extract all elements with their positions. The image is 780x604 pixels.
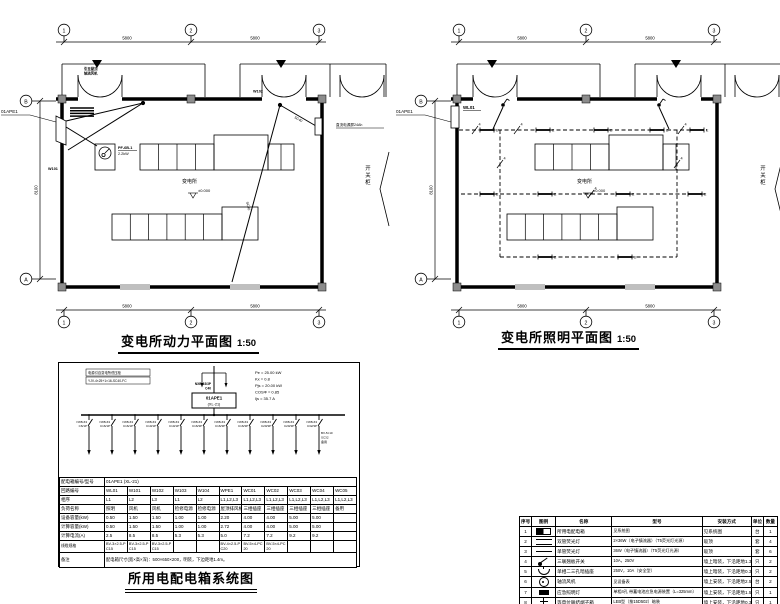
- branch-rating: C16/3P: [192, 424, 202, 428]
- branch-circuit: NXB-63C16/1P: [122, 414, 138, 455]
- panel-id: 01APE1: [206, 396, 223, 401]
- table-cell: 4.00: [265, 523, 288, 532]
- legend-spec: 见设备表: [612, 577, 702, 588]
- table-cell: 0.50: [105, 514, 128, 523]
- fan-power: 2.2kW: [118, 152, 129, 156]
- single-lamp-icon: [536, 551, 552, 552]
- legend-cell: 单管荧光灯: [556, 547, 612, 557]
- legend-cell: 台: [751, 577, 763, 588]
- branch-rating: C16/3P: [238, 424, 248, 428]
- table-cell: [334, 523, 357, 532]
- grid-bubble: 2: [190, 28, 193, 34]
- table-cell: 5.0: [219, 532, 242, 541]
- table-cell: 4.00: [242, 514, 265, 523]
- grid-bubble: 1: [63, 28, 66, 34]
- legend-header: 图例: [532, 517, 556, 527]
- load-parameter: Pe = 25.00 kW: [255, 370, 282, 375]
- dimension-label: 5800: [122, 36, 132, 41]
- side-room-label: 关: [365, 171, 371, 179]
- table-cell: 三相插座: [265, 505, 288, 514]
- table-cell: 5.00: [288, 523, 311, 532]
- table-cell: 4.00: [242, 523, 265, 532]
- table-cell: L1: [173, 496, 196, 505]
- conduit-label: SC40: [294, 115, 304, 123]
- dimension-label: 8100: [429, 185, 434, 195]
- table-cell: [173, 541, 196, 553]
- legend-spec: 36W（电子镇流器）（T5荧光灯光源）: [612, 547, 702, 557]
- grid-bubble: B: [419, 99, 423, 105]
- legend-cell: 8: [520, 598, 532, 604]
- table-cell: 检修电源: [196, 505, 219, 514]
- table-cell: 5.3: [196, 532, 219, 541]
- legend-cell: 2: [763, 557, 777, 567]
- legend-cell: 6: [763, 547, 777, 557]
- table-cell: W101: [127, 487, 150, 496]
- table-cell: W102: [150, 487, 173, 496]
- table-cell: L1,L2,L3: [288, 496, 311, 505]
- table-cell: 2.72: [219, 523, 242, 532]
- switchgear-cabinets: 变电所±0.000: [507, 135, 689, 240]
- legend-row: 6轴流风机见设备表墙上安装，下沿距地2.5M台2: [520, 577, 778, 588]
- level-mark: ±0.000: [198, 188, 211, 193]
- legend-cell: 4: [520, 557, 532, 567]
- switch-icon: [538, 558, 549, 566]
- table-cell: 2.20: [219, 514, 242, 523]
- legend-cell: 4: [763, 537, 777, 547]
- legend-cell: 墙上暗装，下沿距地1.3M: [702, 557, 751, 567]
- branch-circuit: NXB-63C16/1P: [99, 414, 115, 455]
- lighting-plan-scale: 1:50: [617, 334, 636, 345]
- legend-row: 5单相二三孔暗插座250V，10A（安全型）墙上暗装，下沿距地0.3M只2: [520, 567, 778, 577]
- system-diagram-title-text: 所用电配电箱系统图: [128, 571, 254, 586]
- legend-cell: 2: [763, 567, 777, 577]
- table-cell: 检修电源: [173, 505, 196, 514]
- dimension-label: 5800: [250, 36, 260, 41]
- table-row: 回路编号WL01W101W102W103W104WPE1WC01WC02WC03…: [60, 487, 357, 496]
- source-note: 电源引自变电所低压柜: [88, 370, 122, 375]
- branch-rating: C20/3P: [284, 424, 294, 428]
- emergency-lamp-icon: [539, 590, 549, 595]
- table-cell: BV-3×2.5-PC15: [105, 541, 128, 553]
- socket-icon: [538, 569, 550, 575]
- load-parameter: Ijs = 35.7 A: [255, 396, 275, 401]
- double-lamp-icon: [536, 539, 552, 545]
- table-cell: 5.00: [288, 514, 311, 523]
- table-cell: 2.5: [105, 532, 128, 541]
- table-cell: 1.50: [127, 523, 150, 532]
- switchgear-cabinets: 变电所±0.000PF-6B-12.2kW: [95, 135, 294, 240]
- legend-symbol-cell: [532, 567, 556, 577]
- dimension-label: 8100: [34, 185, 39, 195]
- wire-count: 4: [479, 123, 481, 127]
- grid-bubble: 3: [713, 320, 716, 326]
- panel-model: (XL-21): [208, 403, 221, 407]
- row-label: 配电箱编号/型号: [60, 478, 105, 487]
- legend-cell: 台: [751, 527, 763, 537]
- table-cell: BV-4×2.5-PC20: [219, 541, 242, 553]
- legend-spec: 250V，10A（安全型）: [612, 567, 702, 577]
- table-cell: 5.3: [173, 532, 196, 541]
- legend-cell: 2: [763, 577, 777, 588]
- power-plan-title: 变电所动力平面图1:50: [118, 331, 259, 354]
- table-cell: 1.00: [196, 514, 219, 523]
- table-row: 线缆规格BV-3×2.5-PC15BV-3×2.5-PC15BV-3×2.5-P…: [60, 541, 357, 553]
- table-cell: 8.5: [150, 532, 173, 541]
- legend-cell: 7: [520, 588, 532, 598]
- branch-rating: C16/3P: [215, 424, 225, 428]
- table-cell: [334, 541, 357, 553]
- wire-count: 4: [681, 157, 683, 161]
- legend-spec: LEB型（按15D502）暗装: [612, 598, 702, 604]
- grid-bubble: 1: [63, 320, 66, 326]
- branch-circuit: NXB-63C16/3P: [214, 414, 230, 455]
- legend-cell: 轴流风机: [556, 577, 612, 588]
- table-cell: 8.5: [127, 532, 150, 541]
- legend-cell: 3: [520, 547, 532, 557]
- branch-circuit: NXB-63C32/3PBV-5×10SC32备用: [306, 414, 332, 455]
- legend-cell: 墙上安装，下沿距地0.3M: [702, 598, 751, 604]
- grid-bubble: A: [419, 277, 423, 283]
- side-room-label: 开: [760, 165, 766, 172]
- row-label: 计算电流(A): [60, 532, 105, 541]
- grid-bubble: 1: [458, 28, 461, 34]
- grid-bubble: 3: [318, 28, 321, 34]
- legend-header: 单位: [751, 517, 763, 527]
- table-cell: L1,L2,L3: [311, 496, 334, 505]
- dimension-label: 5800: [517, 304, 527, 309]
- branch-circuit: NXB-63C20/3P: [260, 414, 276, 455]
- system-load-table: 配电箱编号/型号01APE1 (XL-21)回路编号WL01W101W102W1…: [59, 477, 357, 568]
- legend-header: 安装方式: [702, 517, 751, 527]
- legend-symbol-cell: [532, 537, 556, 547]
- table-cell: BV-3×2.5-PC15: [127, 541, 150, 553]
- panel-icon: [536, 528, 551, 535]
- table-cell: L1: [105, 496, 128, 505]
- branch-circuit: NXB-63C10/1P: [168, 414, 184, 455]
- row-label: 负荷名称: [60, 505, 105, 514]
- legend-symbol-cell: [532, 527, 556, 537]
- legend-cell: 应急照明灯: [556, 588, 612, 598]
- branch-rating: C10/1P: [169, 424, 179, 428]
- load-parameter: Pjs = 20.00 kW: [255, 383, 282, 388]
- grid-system: 1122335800580058005800BA810001APE1: [396, 24, 721, 328]
- row-label: 设备容量(kW): [60, 514, 105, 523]
- branch-note: 备用: [321, 439, 327, 444]
- table-cell: 7.2: [265, 532, 288, 541]
- lamp-mark: E: [496, 192, 499, 196]
- lamp-mark: E: [554, 192, 557, 196]
- table-cell: 三相插座: [311, 505, 334, 514]
- table-cell: BV-5×4-PC20: [265, 541, 288, 553]
- table-cell: [196, 541, 219, 553]
- branch-rating: C10/1P: [146, 424, 156, 428]
- system-oneline-drawing: NXB-63/3PC4001APE1(XL-21)电源引自变电所低压柜YJV-4…: [59, 363, 357, 477]
- table-cell: L2: [196, 496, 219, 505]
- legend-symbol-cell: [532, 547, 556, 557]
- legend-cell: 见系统图: [702, 527, 751, 537]
- legend-header: 型号: [612, 517, 702, 527]
- main-breaker-label: C40: [205, 387, 211, 391]
- table-cell: 5.00: [311, 523, 334, 532]
- table-cell: L1,L2,L3: [265, 496, 288, 505]
- legend-cell: 只: [751, 567, 763, 577]
- legend-cell: 所用电配电箱: [556, 527, 612, 537]
- legend-cell: 墙上暗装，下沿距地0.3M: [702, 567, 751, 577]
- roof-fan-note: 引至屋顶: [84, 66, 98, 71]
- table-cell: L3: [150, 496, 173, 505]
- branch-circuit: NXB-63C20/3P: [283, 414, 299, 455]
- legend-cell: 6: [520, 577, 532, 588]
- wire-count: 4: [595, 187, 597, 191]
- grid-bubble: 3: [713, 28, 716, 34]
- table-cell: WC04: [311, 487, 334, 496]
- circuit-label: W102: [253, 90, 263, 94]
- legend-cell: 墙上安装，下沿距地2.5M: [702, 577, 751, 588]
- table-cell: 0.50: [105, 523, 128, 532]
- table-cell: WPE1: [219, 487, 242, 496]
- table-cell: L1,L2,L3: [334, 496, 357, 505]
- side-room-label: 柜: [760, 178, 766, 186]
- legend-cell: 套: [751, 537, 763, 547]
- table-cell: W104: [196, 487, 219, 496]
- dc-panel-note: 直流电源屏24Ah: [336, 122, 362, 127]
- panel-tag: 01APE1: [1, 109, 18, 114]
- row-label: 相序: [60, 496, 105, 505]
- legend-cell: 1: [520, 527, 532, 537]
- legend-cell: 单相二三孔暗插座: [556, 567, 612, 577]
- drawing-sheet: 1122335800580058005800BA810001APE1开关柜变电所…: [0, 0, 780, 604]
- row-label: 线缆规格: [60, 541, 105, 553]
- table-cell: WC02: [265, 487, 288, 496]
- branch-circuit: NXB-63C6/1P: [76, 414, 92, 455]
- table-cell: 1.00: [173, 514, 196, 523]
- legend-row: 8等电位联结端子箱LEB型（按15D502）暗装墙上安装，下沿距地0.3M只1: [520, 598, 778, 604]
- legend-cell: 只: [751, 598, 763, 604]
- table-cell: 1.50: [150, 514, 173, 523]
- conduit-label: SC40: [245, 201, 251, 211]
- table-cell: 备用: [334, 505, 357, 514]
- legend-cell: 套: [751, 547, 763, 557]
- table-cell: WL01: [105, 487, 128, 496]
- branch-circuit: NXB-63C10/1P: [145, 414, 161, 455]
- lighting-plan-title-text: 变电所照明平面图: [501, 330, 613, 345]
- lamp-mark: E: [552, 128, 555, 132]
- power-plan-drawing: 1122335800580058005800BA810001APE1开关柜变电所…: [0, 2, 395, 354]
- legend-row: 1所用电配电箱见系统图见系统图台1: [520, 527, 778, 537]
- legend-cell: 吸顶: [702, 537, 751, 547]
- table-cell: WC03: [288, 487, 311, 496]
- room-name: 变电所: [182, 178, 197, 185]
- dimension-label: 5800: [122, 304, 132, 309]
- table-cell: 01APE1 (XL-21): [105, 478, 357, 487]
- row-label: 计算容量(kW): [60, 523, 105, 532]
- room-name: 变电所: [577, 178, 592, 185]
- table-cell: [334, 532, 357, 541]
- table-cell: 7.2: [242, 532, 265, 541]
- legend-spec: 单相4孔 带蓄电池应急电源装置（L=325mm）: [612, 588, 702, 598]
- system-oneline: NXB-63/3PC4001APE1(XL-21)电源引自变电所低压柜YJV-4…: [76, 366, 345, 455]
- legend-row: 2双管荧光灯2×36W（电子镇流器）（T5荧光灯光源）吸顶套4: [520, 537, 778, 547]
- ground-terminal-icon: [539, 598, 549, 604]
- dimension-label: 5800: [517, 36, 527, 41]
- side-room-label: 开: [365, 165, 371, 172]
- branch-note: SC32: [321, 436, 329, 440]
- lamp-mark: E: [610, 128, 613, 132]
- legend-cell: 2: [520, 537, 532, 547]
- legend-cell: 吸顶: [702, 547, 751, 557]
- branch-circuit: NXB-63C16/3P: [237, 414, 253, 455]
- table-cell: WC01: [242, 487, 265, 496]
- grid-bubble: 3: [318, 320, 321, 326]
- grid-bubble: 2: [585, 320, 588, 326]
- legend-spec: 见系统图: [612, 527, 702, 537]
- table-cell: 9.2: [311, 532, 334, 541]
- table-cell: [334, 514, 357, 523]
- panel-tag: 01APE1: [396, 109, 413, 114]
- legend-cell: 5: [520, 567, 532, 577]
- legend-cell: 双管荧光灯: [556, 537, 612, 547]
- row-label: 回路编号: [60, 487, 105, 496]
- table-cell: 1.00: [173, 523, 196, 532]
- legend-cell: 1: [763, 598, 777, 604]
- main-breaker-label: NXB-63/3P: [195, 382, 212, 386]
- grid-system: 1122335800580058005800BA810001APE1: [1, 24, 326, 328]
- dimension-label: 5800: [645, 36, 655, 41]
- grid-bubble: 2: [190, 320, 193, 326]
- branch-rating: C32/3P: [307, 424, 317, 428]
- table-row: 配电箱编号/型号01APE1 (XL-21): [60, 478, 357, 487]
- table-cell: 9.2: [288, 532, 311, 541]
- table-cell: 三相插座: [288, 505, 311, 514]
- lighting-plan-title: 变电所照明平面图1:50: [498, 327, 639, 350]
- table-cell: [288, 541, 311, 553]
- grid-bubble: 1: [458, 320, 461, 326]
- side-room-label: 柜: [365, 178, 371, 186]
- side-room-label: 关: [760, 171, 766, 179]
- power-plan-title-text: 变电所动力平面图: [121, 334, 233, 349]
- table-row: 计算电流(A)2.58.58.55.35.35.07.27.29.29.2: [60, 532, 357, 541]
- table-cell: 风机: [127, 505, 150, 514]
- table-cell: BV-5×4-PC20: [242, 541, 265, 553]
- table-cell: 配电箱尺寸(宽×高×深)：500×650×200，明装，下边距地1.4m。: [105, 553, 357, 568]
- legend-cell: 只: [751, 588, 763, 598]
- lamp-mark: E: [706, 128, 709, 132]
- table-cell: 1.50: [127, 514, 150, 523]
- table-cell: 5.00: [311, 514, 334, 523]
- table-row: 设备容量(kW)0.501.501.501.001.002.204.004.00…: [60, 514, 357, 523]
- circuit-label: WL01: [463, 105, 475, 110]
- branch-circuit: NXB-63C16/3P: [191, 414, 207, 455]
- table-row: 相序L1L2L3L1L2L1,L2,L3L1,L2,L3L1,L2,L3L1,L…: [60, 496, 357, 505]
- table-cell: L1,L2,L3: [219, 496, 242, 505]
- lamp-mark: E: [632, 192, 635, 196]
- wire-count: 4: [685, 123, 687, 127]
- legend-symbol-cell: [532, 577, 556, 588]
- load-parameter: COSΦ = 0.85: [255, 390, 280, 395]
- branch-rating: C6/1P: [79, 424, 87, 428]
- table-row: 备注配电箱尺寸(宽×高×深)：500×650×200，明装，下边距地1.4m。: [60, 553, 357, 568]
- lamp-mark: E: [554, 255, 557, 259]
- branch-rating: C20/3P: [261, 424, 271, 428]
- legend-row: 4三联翘板开关10A，250V墙上暗装，下沿距地1.3M只2: [520, 557, 778, 567]
- legend-header: 序号: [520, 517, 532, 527]
- lighting-plan-drawing: 1122335800580058005800BA810001APE1开关柜变电所…: [395, 2, 780, 354]
- dimension-label: 5800: [250, 304, 260, 309]
- dimension-label: 5800: [645, 304, 655, 309]
- legend-cell: 1: [763, 588, 777, 598]
- legend-cell: 1: [763, 527, 777, 537]
- fan-icon: [539, 577, 549, 587]
- legend-spec: 2×36W（电子镇流器）（T5荧光灯光源）: [612, 537, 702, 547]
- legend-cell: 等电位联结端子箱: [556, 598, 612, 604]
- legend-symbol-cell: [532, 588, 556, 598]
- legend-symbol-cell: [532, 598, 556, 604]
- branch-note: BV-5×10: [321, 431, 333, 435]
- legend-cell: 墙上安装，下沿距地1.5M: [702, 588, 751, 598]
- legend-cell: 只: [751, 557, 763, 567]
- legend-row: 7应急照明灯单相4孔 带蓄电池应急电源装置（L=325mm）墙上安装，下沿距地1…: [520, 588, 778, 598]
- wire-count: 4: [521, 123, 523, 127]
- legend-header: 名称: [556, 517, 612, 527]
- legend-symbol-cell: [532, 557, 556, 567]
- system-diagram-title: 所用电配电箱系统图: [125, 568, 257, 593]
- legend-spec: 10A，250V: [612, 557, 702, 567]
- table-cell: 4.00: [265, 514, 288, 523]
- power-plan-scale: 1:50: [237, 338, 256, 349]
- legend-header: 数量: [763, 517, 777, 527]
- source-note: YJV-4×25+1×16-SC40-FC: [88, 379, 127, 383]
- table-cell: 风机: [150, 505, 173, 514]
- legend-cell: 三联翘板开关: [556, 557, 612, 567]
- building-outline: 开关柜: [56, 60, 389, 291]
- table-cell: [311, 541, 334, 553]
- table-cell: 照明: [105, 505, 128, 514]
- grid-bubble: B: [24, 99, 28, 105]
- branch-rating: C16/1P: [100, 424, 110, 428]
- table-row: 计算容量(kW)0.501.501.501.001.002.724.004.00…: [60, 523, 357, 532]
- legend-table: 序号图例名称型号安装方式单位数量 1所用电配电箱见系统图见系统图台12双管荧光灯…: [519, 516, 778, 604]
- table-cell: W103: [173, 487, 196, 496]
- table-cell: 1.00: [196, 523, 219, 532]
- fan-tag: PF-6B-1: [118, 146, 132, 150]
- table-row: 负荷名称照明风机风机检修电源检修电源屋顶排风机三相插座三相插座三相插座三相插座备…: [60, 505, 357, 514]
- table-cell: 屋顶排风机: [219, 505, 242, 514]
- table-cell: 1.50: [150, 523, 173, 532]
- table-cell: WC05: [334, 487, 357, 496]
- table-cell: L2: [127, 496, 150, 505]
- row-label: 备注: [60, 553, 105, 568]
- grid-bubble: A: [24, 277, 28, 283]
- table-cell: L1,L2,L3: [242, 496, 265, 505]
- roof-fan-note: 轴流风机: [84, 71, 98, 76]
- system-diagram-panel: NXB-63/3PC4001APE1(XL-21)电源引自变电所低压柜YJV-4…: [58, 362, 360, 567]
- lamp-mark: E: [704, 192, 707, 196]
- table-cell: 三相插座: [242, 505, 265, 514]
- branch-rating: C16/1P: [123, 424, 133, 428]
- grid-bubble: 2: [585, 28, 588, 34]
- load-parameter: Kx = 0.8: [255, 377, 271, 382]
- legend-header-row: 序号图例名称型号安装方式单位数量: [520, 517, 778, 527]
- circuit-label: W101: [48, 167, 58, 171]
- legend-row: 3单管荧光灯36W（电子镇流器）（T5荧光灯光源）吸顶套6: [520, 547, 778, 557]
- wire-count: 4: [504, 157, 506, 161]
- table-cell: BV-3×2.5-PC15: [150, 541, 173, 553]
